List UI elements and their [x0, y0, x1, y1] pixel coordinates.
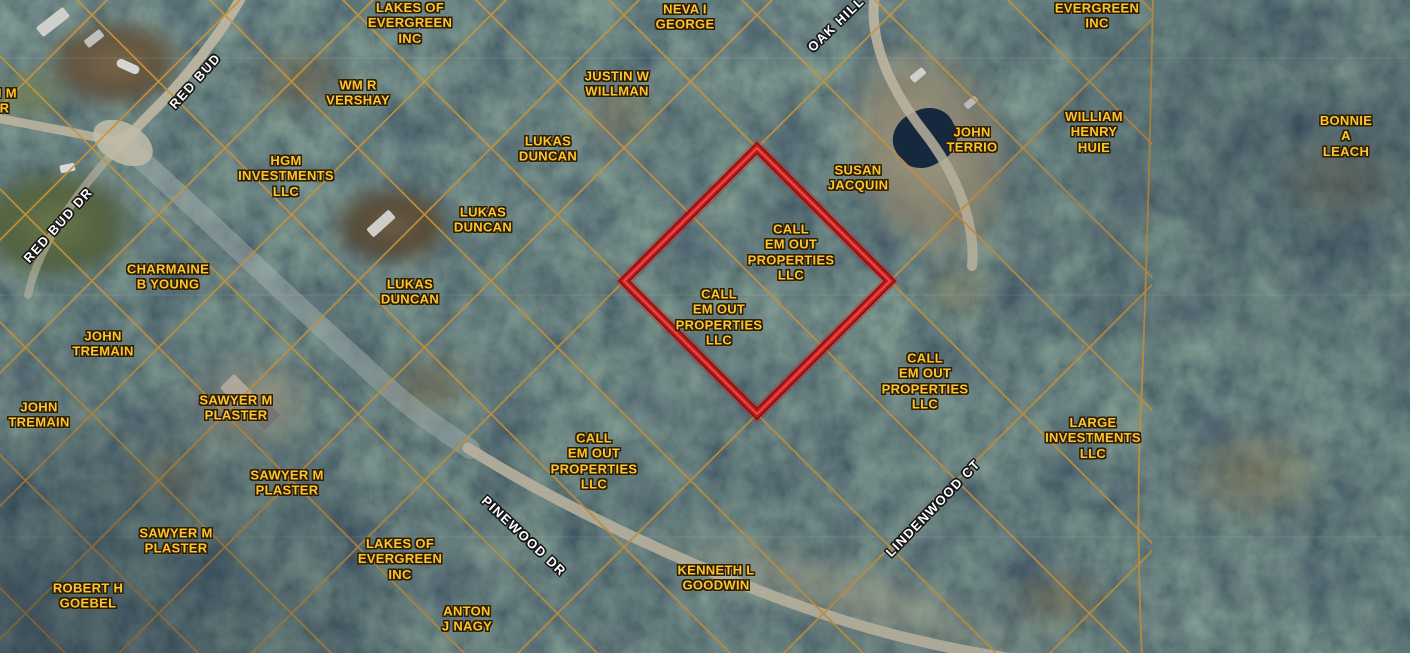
owner-label: CALL EM OUT PROPERTIES LLC — [882, 350, 969, 411]
owner-label: WM R VERSHAY — [326, 78, 390, 109]
owner-label: BONNIE A LEACH — [1314, 113, 1378, 159]
owner-label: LUKAS DUNCAN — [519, 134, 577, 165]
owner-label: ANTON J NAGY — [442, 604, 492, 635]
owner-label-partial: EN M ER — [0, 86, 26, 117]
owner-label: LARGE INVESTMENTS LLC — [1045, 415, 1141, 461]
owner-label: CALL EM OUT PROPERTIES LLC — [551, 430, 638, 491]
owner-label: JOHN TERRIO — [947, 125, 998, 156]
owner-label: WILLIAM HENRY HUIE — [1065, 109, 1123, 155]
owner-label: SAWYER M PLASTER — [139, 526, 212, 557]
owner-label: EVERGREEN INC — [1055, 1, 1139, 32]
owner-label: JOHN TREMAIN — [72, 329, 133, 360]
owner-label: NEVA I GEORGE — [656, 2, 715, 33]
owner-label: LUKAS DUNCAN — [381, 277, 439, 308]
owner-label: CHARMAINE B YOUNG — [127, 262, 209, 293]
owner-label: SAWYER M PLASTER — [199, 393, 272, 424]
owner-label: CALL EM OUT PROPERTIES LLC — [748, 221, 835, 282]
road-label: PINEWOOD DR — [479, 493, 570, 579]
road-label: OAK HILL — [805, 0, 868, 55]
owner-label: LAKES OF EVERGREEN INC — [368, 0, 452, 46]
owner-label: ROBERT H GOEBEL — [53, 581, 123, 612]
map-labels: LAKES OF EVERGREEN INC NEVA I GEORGE EVE… — [0, 0, 1410, 653]
road-label: RED BUD DR — [20, 184, 95, 265]
road-label: RED BUD — [166, 50, 223, 111]
owner-label: HGM INVESTMENTS LLC — [238, 153, 334, 199]
owner-label: CALL EM OUT PROPERTIES LLC — [676, 286, 763, 347]
owner-label: SUSAN JACQUIN — [828, 163, 889, 194]
owner-label: LAKES OF EVERGREEN INC — [358, 536, 442, 582]
owner-label: KENNETH L GOODWIN — [677, 563, 754, 594]
owner-label: JOHN TREMAIN — [8, 400, 69, 431]
owner-label: JUSTIN W WILLMAN — [585, 69, 650, 100]
owner-label: LUKAS DUNCAN — [454, 205, 512, 236]
road-label: LINDENWOOD CT — [883, 456, 984, 560]
owner-label: SAWYER M PLASTER — [250, 468, 323, 499]
satellite-parcel-map[interactable]: LAKES OF EVERGREEN INC NEVA I GEORGE EVE… — [0, 0, 1410, 653]
